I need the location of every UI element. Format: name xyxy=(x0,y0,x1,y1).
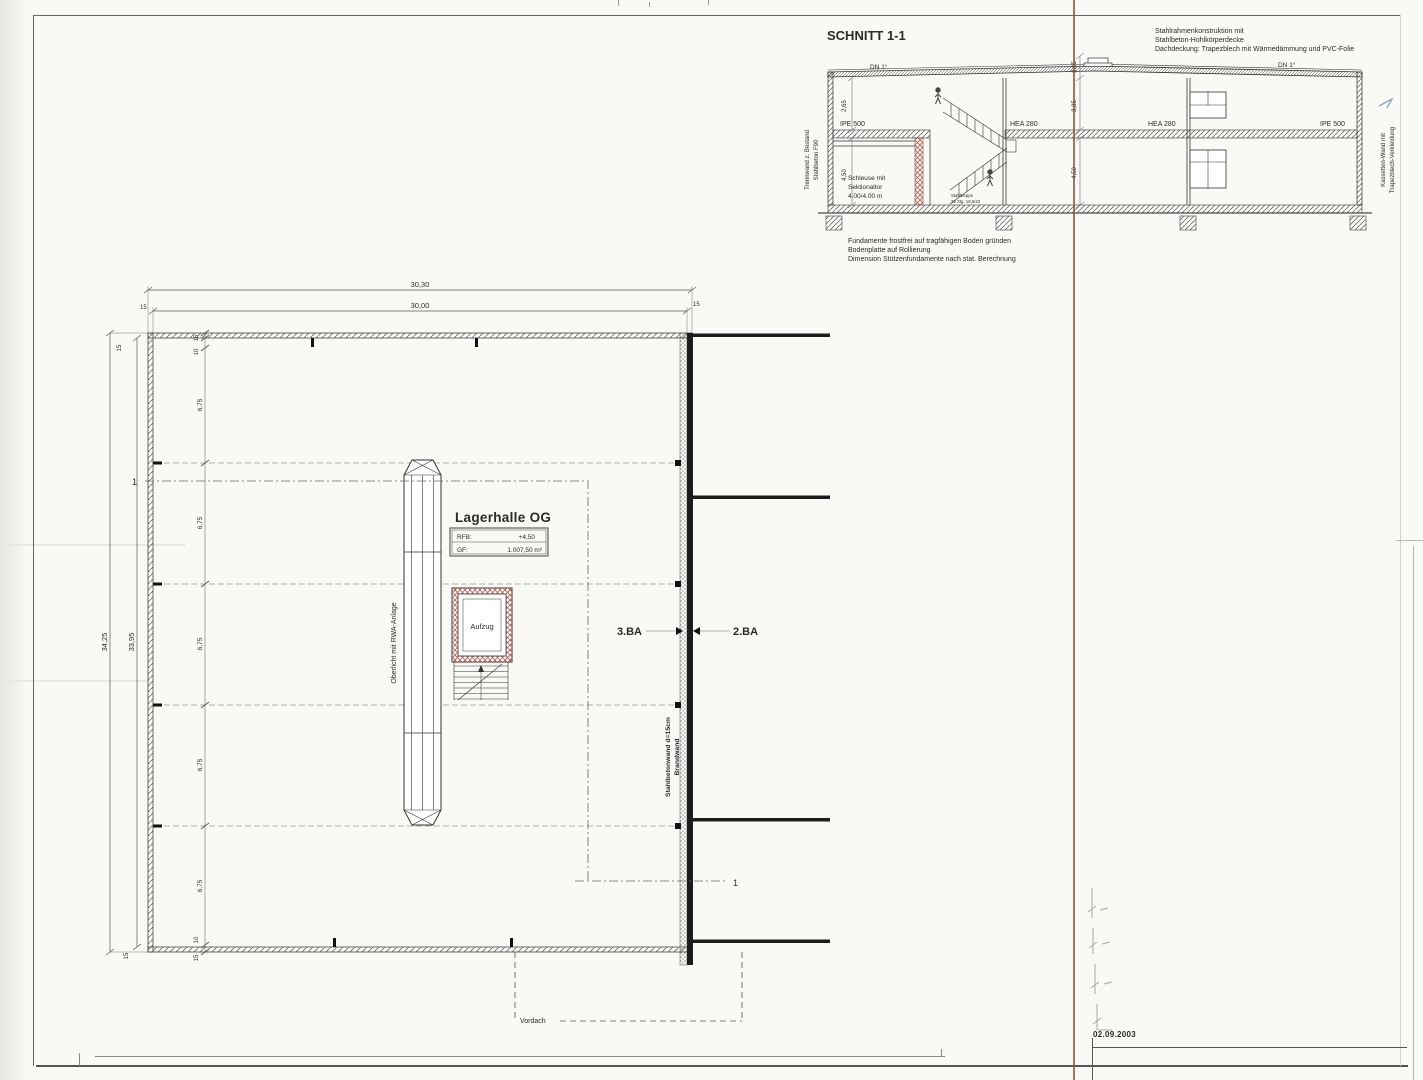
dim-bay-1: 6,75 xyxy=(197,398,204,411)
dim-wall-top-right: 15 xyxy=(693,302,700,308)
section-mark-left: 1 xyxy=(132,477,137,487)
plan-brandwand xyxy=(680,333,693,965)
canopy-label: Vordach xyxy=(520,1018,546,1025)
plan-stairs xyxy=(454,662,508,700)
section-upper-slab xyxy=(833,130,1357,138)
pen-mark xyxy=(1378,96,1396,110)
dim-string-15-bottom: 15 xyxy=(194,954,200,961)
section-note-top-2: Stahlbeton-Hohlkörperdecke xyxy=(1155,37,1244,44)
dim-265: 2,65 xyxy=(842,100,848,112)
date-stamp: 02.09.2003 xyxy=(1093,1030,1136,1039)
dim-total-height: 34,25 xyxy=(100,633,109,652)
rfb-label: RFB: xyxy=(457,534,472,541)
section-wall-right xyxy=(1357,72,1362,205)
dim-inner-height: 33,95 xyxy=(127,633,136,652)
section-foundations xyxy=(826,216,1366,230)
fold-line-red xyxy=(1073,0,1075,1080)
room-title: Lagerhalle OG xyxy=(455,510,551,525)
section-windows xyxy=(1190,92,1226,188)
schleuse-label-1: Schleuse mit xyxy=(848,175,885,182)
beam-label-hea-left: HEA 280 xyxy=(1010,121,1038,128)
stairs-label-2: 23 Stg. 18,5/23 xyxy=(951,199,981,204)
canopy xyxy=(515,952,742,1021)
section-note-top-1: Stahlrahmenkonstruktion mit xyxy=(1155,28,1244,35)
brandwand-label-1: Stahlbetonwand d=15cm xyxy=(665,717,672,797)
titleblock-line-top xyxy=(1092,1047,1407,1048)
dim-bay-5: 6,75 xyxy=(197,879,204,892)
section-title: SCHNITT 1-1 xyxy=(827,28,906,43)
dim-wall-top-left: 15 xyxy=(140,305,147,311)
section-note-bottom-2: Bodenplatte auf Rollierung xyxy=(848,247,931,254)
section-columns xyxy=(1003,78,1190,205)
wall-note-right-1: Kassetten-Wand mit xyxy=(1381,133,1387,187)
section-ground-slab xyxy=(818,205,1372,213)
schleuse-label-2: Sektionaltor xyxy=(848,184,883,191)
section-note-top-3: Dachdeckung: Trapezblech mit Wärmedämmun… xyxy=(1155,46,1354,53)
scan-tick-3 xyxy=(708,0,709,5)
ba2-label: 2.BA xyxy=(733,626,758,638)
dim-inner-width: 30,00 xyxy=(411,301,430,310)
beam-label-ipe-right: IPE 500 xyxy=(1320,121,1345,128)
section-note-bottom-3: Dimension Stützenfundamente nach stat. B… xyxy=(848,256,1016,263)
blueprint-sheet: SCHNITT 1-1 Stahlrahmenkonstruktion mit … xyxy=(0,0,1423,1080)
section-stairs xyxy=(943,98,1016,204)
dim-wall-left-top: 15 xyxy=(117,344,123,351)
beam-label-ipe-left: IPE 500 xyxy=(840,121,865,128)
person-figure-2 xyxy=(987,170,993,186)
plan-dim-left xyxy=(106,330,209,955)
section-drawing: SCHNITT 1-1 Stahlrahmenkonstruktion mit … xyxy=(800,20,1400,280)
dim-bay-2: 6,75 xyxy=(197,516,204,529)
plan-2ba-walls xyxy=(693,334,830,944)
gf-label: GF: xyxy=(457,547,468,554)
section-mark-bottom: 1 xyxy=(733,878,738,888)
page-border-bottom xyxy=(36,1065,1408,1067)
section-wall-left xyxy=(828,72,833,205)
dim-string-10-bottom: 10 xyxy=(194,936,200,943)
beam-label-hea-right: HEA 280 xyxy=(1148,121,1176,128)
section-note-bottom-1: Fundamente frostfrei auf tragfähigen Bod… xyxy=(848,238,1011,245)
floor-plan: 30,30 30,00 15 15 34,25 33,95 15 15 15 1… xyxy=(30,270,840,1060)
dim-450-left: 4,50 xyxy=(842,169,848,181)
bottom-dim-tick-left xyxy=(79,1053,80,1066)
dim-bay-4: 6,75 xyxy=(197,758,204,771)
elevator-label: Aufzug xyxy=(470,622,493,631)
ghost-dimension-marks xyxy=(1080,880,1150,1080)
rfb-value: +4,50 xyxy=(519,534,536,541)
titleblock-line-left xyxy=(1092,1038,1093,1080)
bottom-dim-tick-right xyxy=(941,1049,942,1057)
dim-total-width: 30,30 xyxy=(411,280,430,289)
stairs-label-1: Stahltreppe xyxy=(951,193,974,198)
brandwand-label-2: Brandwand xyxy=(674,738,681,775)
dim-wall-left-bottom: 15 xyxy=(124,952,130,959)
person-figure-1 xyxy=(935,88,941,104)
dim-string-15-top: 15 xyxy=(194,334,200,341)
wall-note-left-1: Trennwand z. Bestand xyxy=(805,130,811,190)
skylight-label: Oberlicht mit RWA-Anlage xyxy=(391,602,398,683)
bottom-dim-line xyxy=(95,1056,945,1057)
roof-slope-right: DN 1° xyxy=(1278,61,1296,69)
scan-left-edge xyxy=(0,0,24,1080)
dim-string-10-top: 10 xyxy=(194,348,200,355)
page-border-top xyxy=(33,15,1400,16)
schleuse-label-3: 4.00/4.00 m xyxy=(848,193,882,200)
ba3-label: 3.BA xyxy=(617,626,642,638)
roof-monitor xyxy=(1084,58,1112,67)
scan-tick-2 xyxy=(649,2,650,7)
adjacent-sheet-top-edge xyxy=(1396,540,1423,541)
adjacent-sheet-left-edge xyxy=(1413,546,1414,1080)
wall-note-left-2: Stahlbeton F90 xyxy=(814,139,820,180)
dim-bay-3: 6,75 xyxy=(197,637,204,650)
gf-value: 1.007,50 m² xyxy=(507,547,543,554)
wall-note-right-2: Trapezblech-Verkleidung xyxy=(1390,127,1396,193)
roof-slope-left: DN 1° xyxy=(870,63,888,71)
skylight xyxy=(404,460,441,825)
scan-tick-1 xyxy=(618,0,619,6)
